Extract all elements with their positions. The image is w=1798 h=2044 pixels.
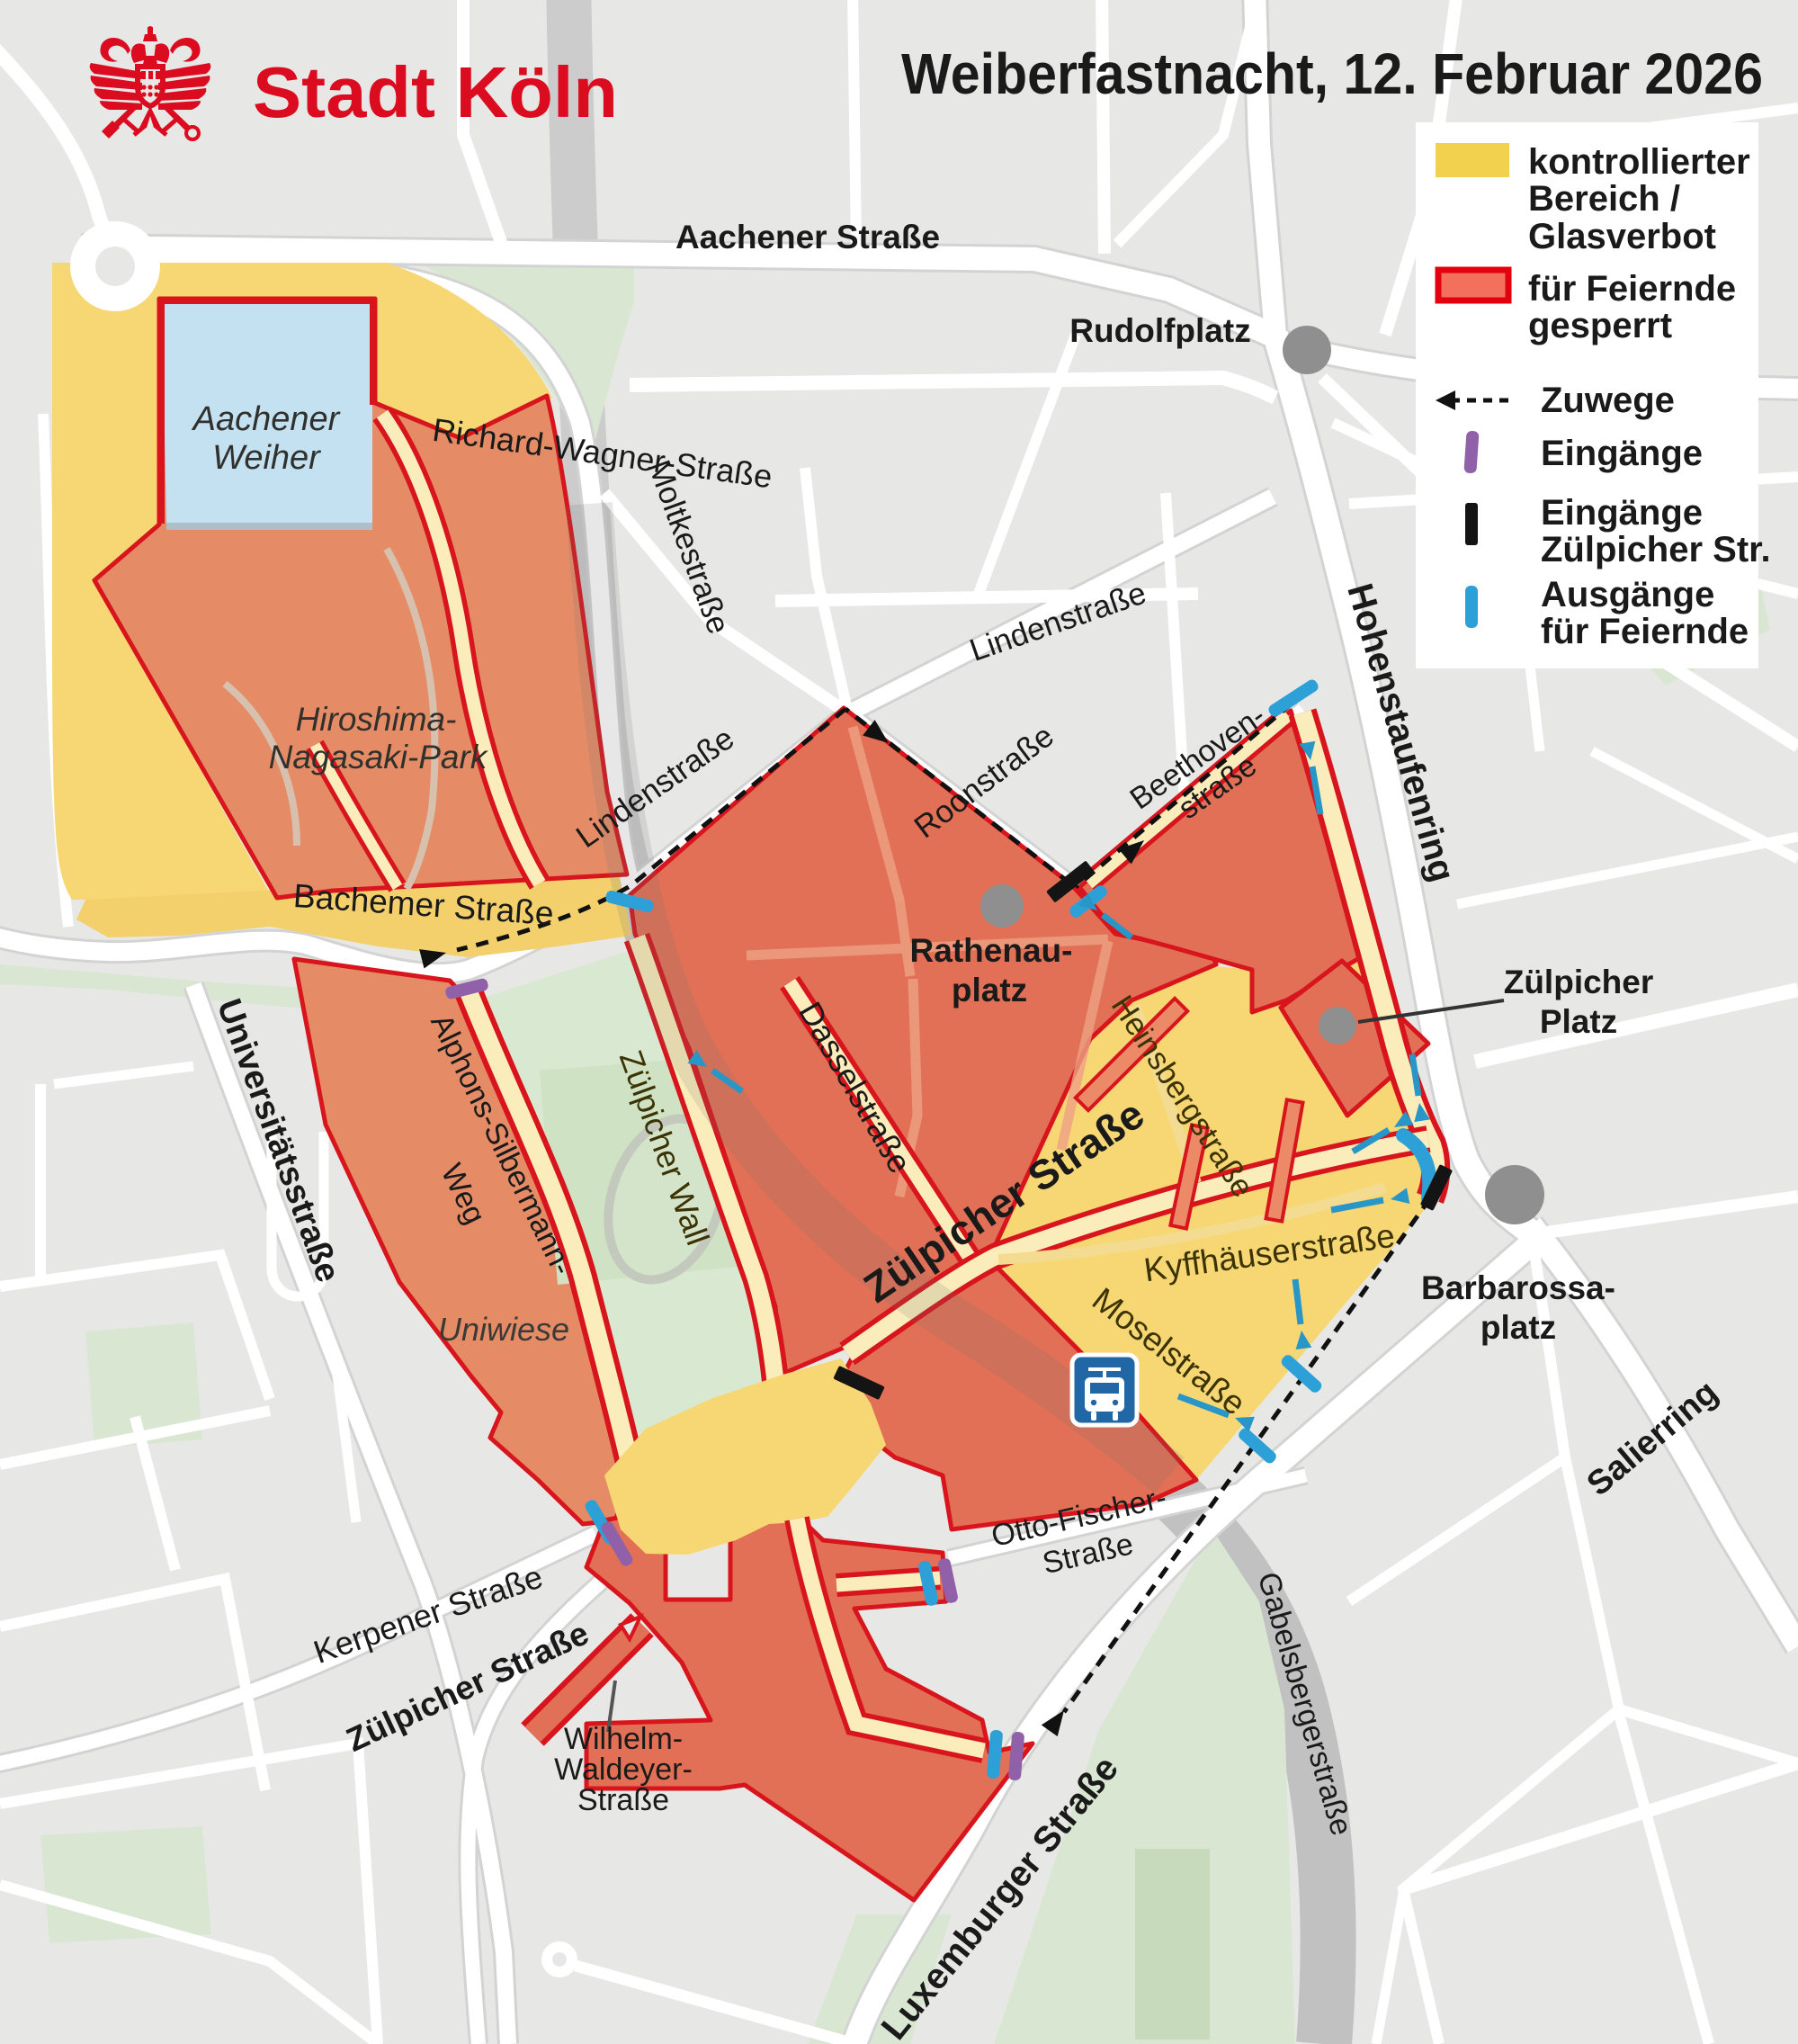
svg-text:gesperrt: gesperrt xyxy=(1528,306,1672,345)
svg-text:Nagasaki-Park: Nagasaki-Park xyxy=(269,739,489,775)
svg-text:Zülpicher: Zülpicher xyxy=(1504,964,1654,1000)
svg-text:kontrollierter: kontrollierter xyxy=(1528,142,1750,182)
svg-text:Weiher: Weiher xyxy=(212,439,321,477)
svg-text:Wilhelm-: Wilhelm- xyxy=(564,1722,683,1756)
svg-text:Rudolfplatz: Rudolfplatz xyxy=(1069,312,1250,349)
svg-text:Glasverbot: Glasverbot xyxy=(1528,217,1716,256)
svg-text:Zuwege: Zuwege xyxy=(1541,381,1675,420)
svg-text:Barbarossa-: Barbarossa- xyxy=(1421,1269,1615,1306)
svg-text:Waldeyer-: Waldeyer- xyxy=(554,1753,693,1787)
svg-text:Stadt Köln: Stadt Köln xyxy=(253,52,618,132)
svg-text:Zülpicher Str.: Zülpicher Str. xyxy=(1541,530,1771,569)
svg-text:Rathenau-: Rathenau- xyxy=(910,932,1073,969)
svg-text:Eingänge: Eingänge xyxy=(1541,434,1703,473)
svg-text:Aachener: Aachener xyxy=(192,400,341,438)
svg-text:Bereich /: Bereich / xyxy=(1528,179,1680,219)
svg-text:Straße: Straße xyxy=(577,1783,669,1817)
svg-text:Platz: Platz xyxy=(1540,1003,1617,1040)
svg-text:für Feiernde: für Feiernde xyxy=(1528,269,1736,309)
svg-text:Weiberfastnacht, 12. Februar 2: Weiberfastnacht, 12. Februar 2026 xyxy=(901,41,1763,106)
svg-text:Eingänge: Eingänge xyxy=(1541,493,1703,533)
svg-text:platz: platz xyxy=(952,972,1027,1009)
svg-text:Ausgänge: Ausgänge xyxy=(1541,575,1714,614)
svg-text:Uniwiese: Uniwiese xyxy=(438,1311,569,1348)
svg-text:für Feiernde: für Feiernde xyxy=(1541,612,1749,651)
svg-text:Aachener Straße: Aachener Straße xyxy=(675,219,940,255)
svg-text:Hiroshima-: Hiroshima- xyxy=(296,701,457,738)
svg-text:platz: platz xyxy=(1480,1309,1556,1346)
